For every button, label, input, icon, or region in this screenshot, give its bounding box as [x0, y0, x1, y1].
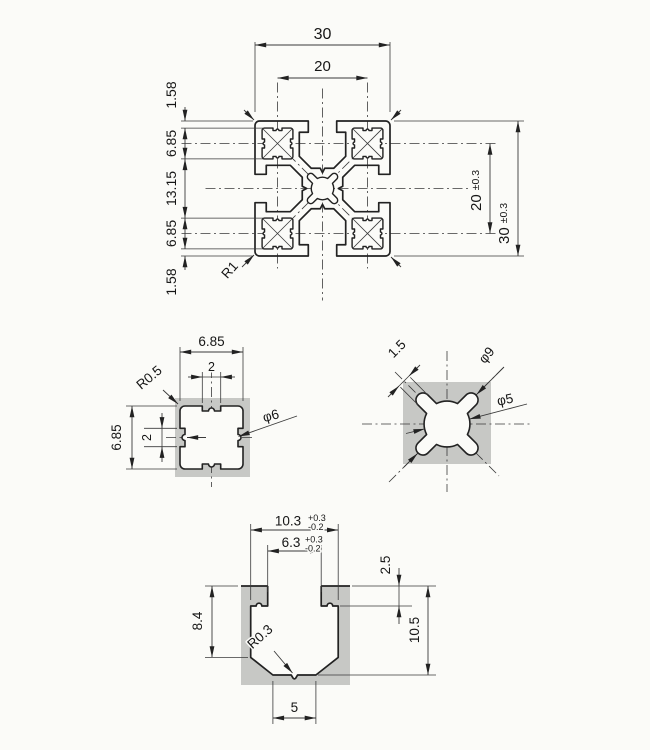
dim-width-label: 6.85	[198, 334, 224, 349]
center-hub-hole	[307, 173, 337, 203]
drawing-svg: 30 20 1.58 6.85 13.15 6.85 1.58 20±0.3 3…	[0, 0, 650, 750]
outer-diameter-label: φ9	[476, 344, 498, 366]
slot-detail-view: 10.3 +0.3 -0.2 6.3 +0.3 -0.2 2.5 10.5 8.…	[190, 513, 436, 724]
corner-radius-leader	[163, 390, 178, 404]
corner-radius-label: R0.5	[133, 363, 164, 393]
dim-side-depth-label: 8.4	[190, 611, 205, 630]
dim-left-wall-top-label: 1.58	[163, 81, 179, 108]
corner-tick	[391, 110, 401, 120]
opening-tol-minus: -0.2	[305, 544, 321, 554]
dim-width-outer-label: 30	[314, 26, 332, 43]
dim-height-centers-label: 20±0.3	[468, 170, 485, 211]
dim-total-depth-label: 10.5	[407, 617, 422, 643]
corner-tick	[244, 110, 254, 120]
corner-radius-leader	[242, 255, 254, 267]
dim-arm-width-arrow	[388, 386, 399, 397]
center-hub-outline	[416, 393, 478, 455]
corner-radius-label: R1	[218, 259, 241, 282]
dim-arm-width-arrow	[409, 365, 420, 376]
technical-drawing-canvas: 30 20 1.58 6.85 13.15 6.85 1.58 20±0.3 3…	[0, 0, 650, 750]
dim-left-block-bottom-label: 6.85	[163, 220, 179, 247]
core-diameter-label: φ5	[496, 391, 515, 409]
dim-height-label: 6.85	[109, 424, 124, 450]
dim-left-block-top-label: 6.85	[163, 130, 179, 157]
dim-left-wall-bottom-label: 1.58	[163, 268, 179, 295]
corner-hole-detail-view: 6.85 2 R0.5 6.85 2 φ6	[109, 334, 297, 487]
slot-width-tol-minus: -0.2	[308, 522, 324, 532]
dim-arm-width-label: 1.5	[385, 337, 409, 361]
dim-slot-width-label: 10.3	[275, 514, 301, 529]
main-profile-view: 30 20 1.58 6.85 13.15 6.85 1.58 20±0.3 3…	[163, 26, 524, 301]
dim-width-centers-label: 20	[314, 58, 331, 75]
dim-height-outer-label: 30±0.3	[496, 203, 513, 244]
bore-diameter-label: φ6	[261, 406, 281, 425]
dim-opening-width-label: 6.3	[282, 535, 301, 550]
dim-bottom-flat-label: 5	[291, 700, 299, 715]
dim-tab-height-label: 2	[140, 434, 154, 441]
dim-tab-width-label: 2	[208, 360, 215, 374]
dim-left-center-label: 13.15	[163, 171, 179, 206]
center-hub-detail-view: 1.5 φ9 φ5	[362, 337, 532, 492]
corner-tick	[391, 257, 401, 267]
dim-lip-depth-label: 2.5	[378, 556, 393, 575]
